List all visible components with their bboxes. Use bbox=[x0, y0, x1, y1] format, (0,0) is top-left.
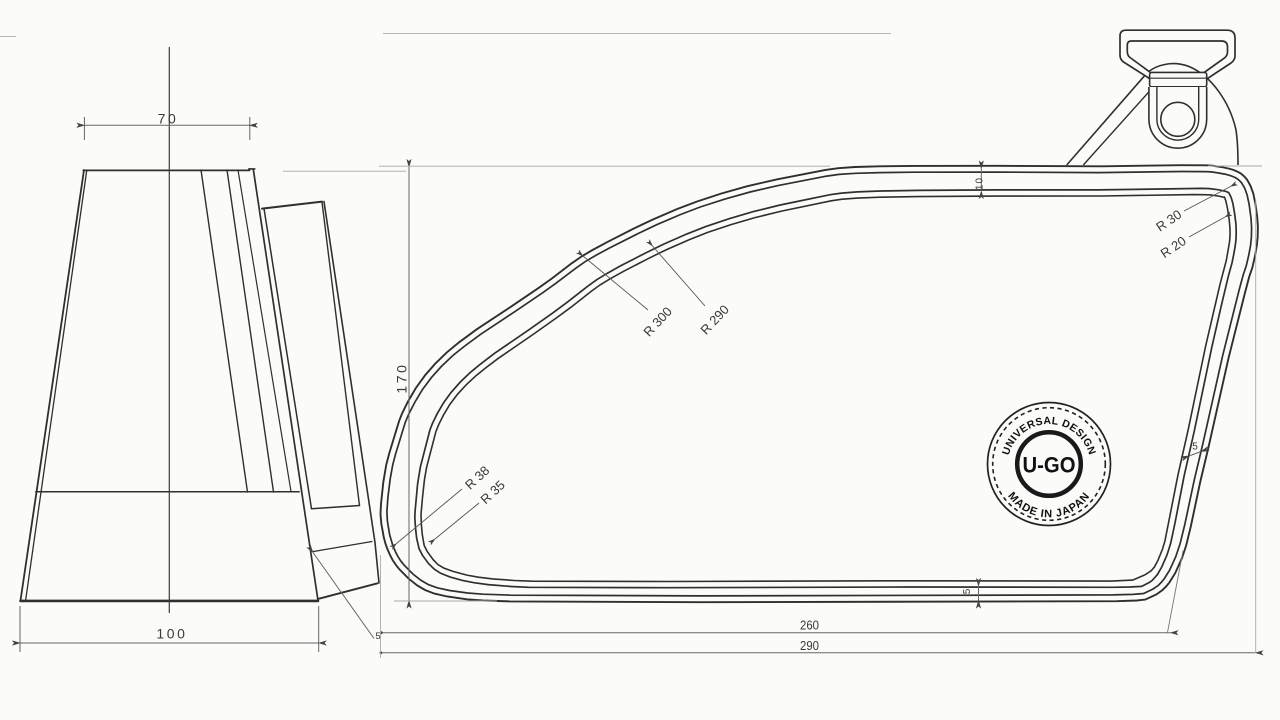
svg-text:170: 170 bbox=[394, 362, 410, 393]
svg-text:5: 5 bbox=[1192, 442, 1198, 453]
svg-text:5: 5 bbox=[375, 631, 380, 642]
svg-text:260: 260 bbox=[800, 618, 819, 633]
svg-text:290: 290 bbox=[800, 638, 819, 653]
svg-text:U-GO: U-GO bbox=[1023, 453, 1076, 478]
svg-text:100: 100 bbox=[156, 626, 187, 642]
svg-text:70: 70 bbox=[158, 111, 179, 127]
svg-text:10: 10 bbox=[975, 177, 986, 190]
svg-text:5: 5 bbox=[962, 588, 973, 594]
